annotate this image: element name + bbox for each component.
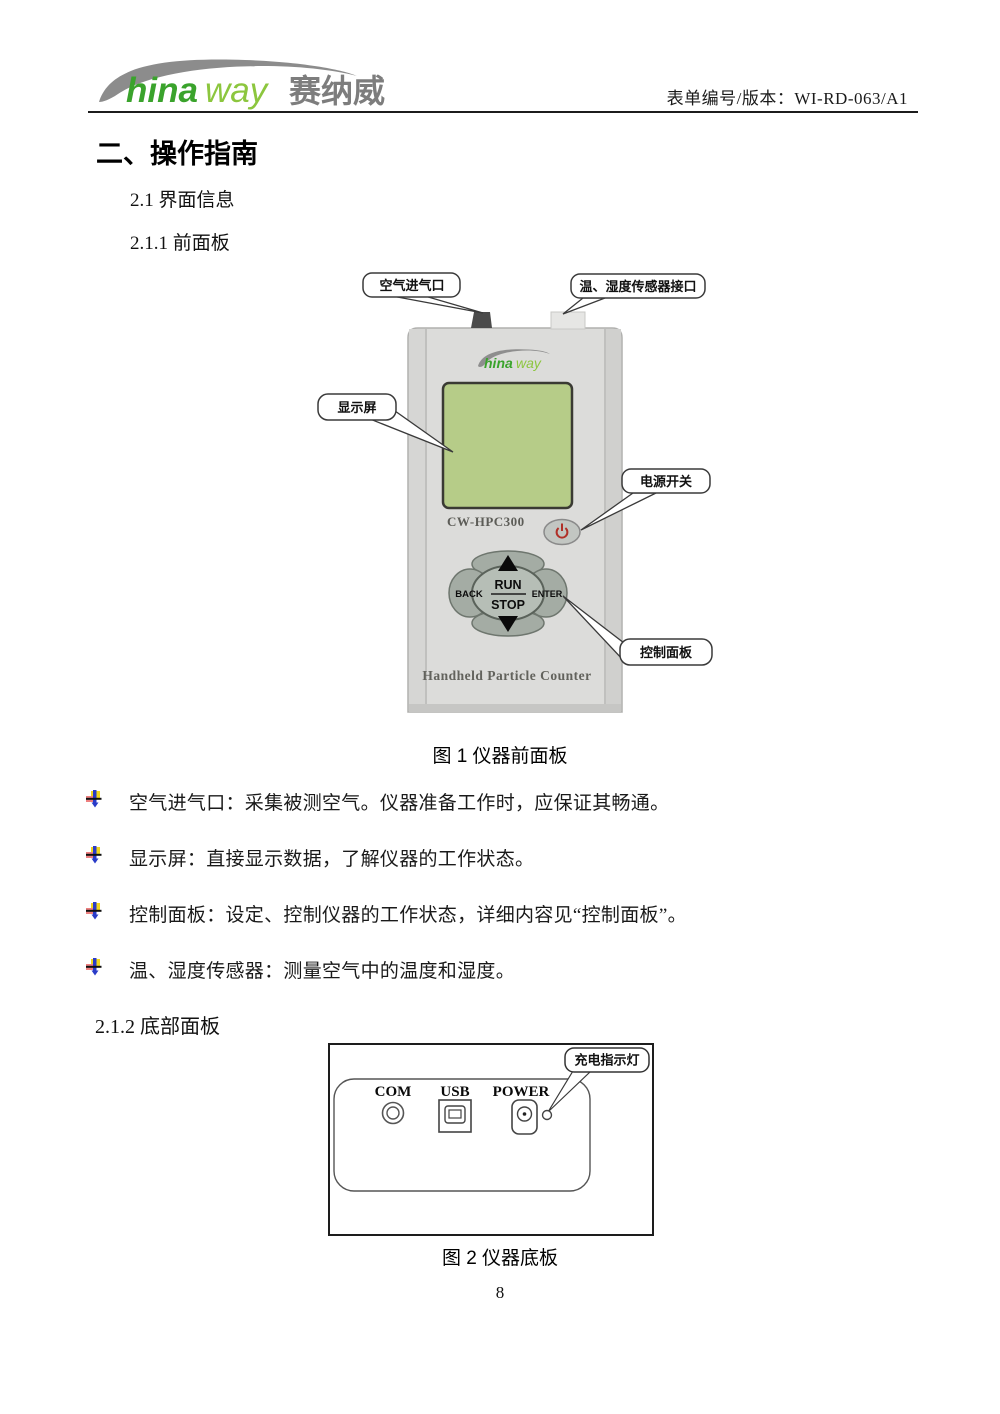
- callout-display-label: 显示屏: [337, 400, 376, 415]
- device-left-bezel: [409, 329, 426, 711]
- device-screen: [443, 383, 572, 508]
- power-jack-pin: [523, 1112, 527, 1116]
- callout-led-label: 充电指示灯: [574, 1053, 639, 1068]
- callout-air-inlet-label: 空气进气口: [379, 278, 444, 293]
- air-inlet-nozzle: [471, 312, 492, 328]
- section-title: 二、操作指南: [96, 132, 258, 171]
- page-number: 8: [0, 1283, 1000, 1303]
- com-port-inner: [387, 1107, 399, 1119]
- header-rule: [88, 111, 918, 113]
- sensor-connector: [551, 312, 585, 329]
- bullet-text: 控制面板：设定、控制仪器的工作状态，详细内容见“控制面板”。: [129, 900, 687, 927]
- power-port-label: POWER: [493, 1084, 550, 1100]
- device-logo-way: way: [516, 355, 542, 371]
- arrow-bullet-icon: [86, 790, 103, 809]
- figure2-bottom-panel: COM USB POWER 充电指示灯: [328, 1043, 654, 1236]
- device-footer-label: Handheld Particle Counter: [422, 668, 591, 683]
- logo-text-cn: 赛纳威: [289, 73, 385, 109]
- back-label: BACK: [455, 589, 483, 600]
- logo-text-hina: hina: [126, 71, 198, 110]
- arrow-bullet-icon: [86, 902, 103, 921]
- arrow-bullet-icon: [86, 846, 103, 865]
- callout-power-label: 电源开关: [640, 474, 692, 489]
- bullet-item: 显示屏：直接显示数据，了解仪器的工作状态。: [86, 844, 534, 871]
- callout-control-label: 控制面板: [640, 645, 693, 660]
- figure1-front-panel: hina way CW-HPC300 RUN STOP BACK ENTER H…: [300, 262, 720, 732]
- usb-label: USB: [440, 1084, 469, 1100]
- company-logo: hina way 赛纳威: [93, 56, 385, 114]
- figure2-caption: 图 2 仪器底板: [0, 1243, 1000, 1270]
- bullet-item: 控制面板：设定、控制仪器的工作状态，详细内容见“控制面板”。: [86, 900, 687, 927]
- doc-number: 表单编号/版本：WI-RD-063/A1: [667, 84, 908, 109]
- bullet-text: 显示屏：直接显示数据，了解仪器的工作状态。: [129, 844, 534, 871]
- usb-port-inner: [449, 1110, 461, 1118]
- bullet-item: 温、湿度传感器：测量空气中的温度和湿度。: [86, 956, 515, 983]
- device-bottom-edge: [409, 704, 621, 712]
- run-label: RUN: [494, 578, 521, 592]
- callout-sensor-label: 温、湿度传感器接口: [579, 279, 696, 294]
- charge-led: [543, 1111, 552, 1120]
- com-label: COM: [375, 1084, 412, 1100]
- arrow-bullet-icon: [86, 958, 103, 977]
- enter-label: ENTER: [532, 589, 563, 599]
- figure1-caption: 图 1 仪器前面板: [0, 741, 1000, 768]
- power-button: [544, 520, 580, 545]
- logo-text-way: way: [205, 71, 270, 110]
- bullet-item: 空气进气口：采集被测空气。仪器准备工作时，应保证其畅通。: [86, 788, 669, 815]
- bullet-text: 温、湿度传感器：测量空气中的温度和湿度。: [129, 956, 515, 983]
- heading-2-1-2: 2.1.2 底部面板: [95, 1010, 220, 1039]
- heading-2-1-1: 2.1.1 前面板: [130, 228, 230, 255]
- device-logo-hina: hina: [484, 355, 513, 371]
- document-page: hina way 赛纳威 表单编号/版本：WI-RD-063/A1 二、操作指南…: [0, 0, 1000, 1414]
- device-model-label: CW-HPC300: [447, 514, 525, 529]
- stop-label: STOP: [491, 598, 525, 612]
- heading-2-1: 2.1 界面信息: [130, 185, 235, 212]
- bullet-text: 空气进气口：采集被测空气。仪器准备工作时，应保证其畅通。: [129, 788, 669, 815]
